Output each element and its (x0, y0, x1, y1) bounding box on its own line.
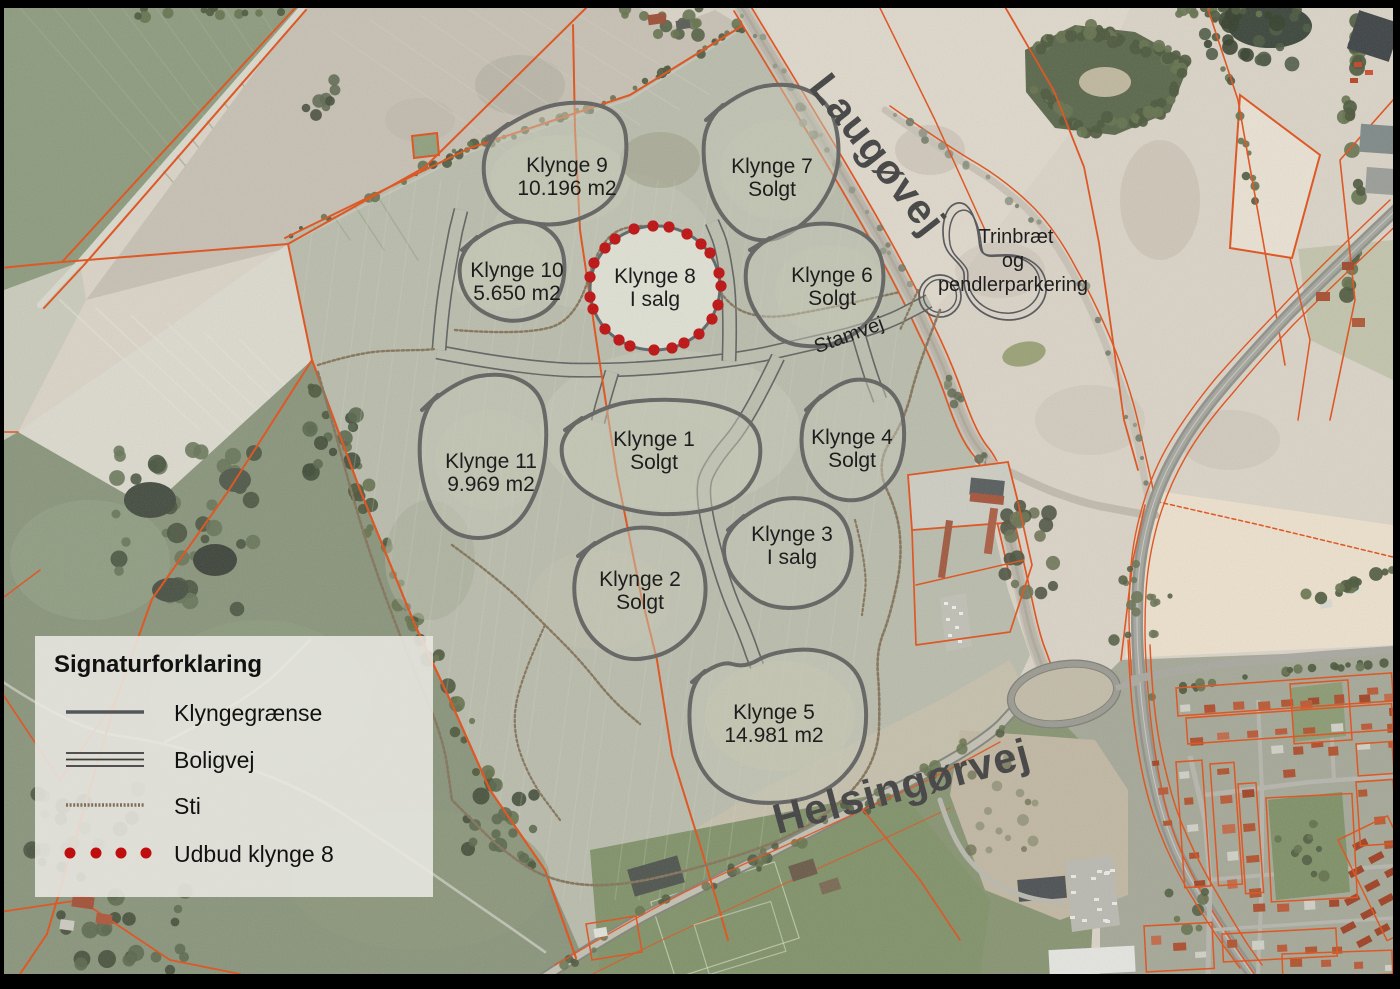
svg-text:Boligvej: Boligvej (174, 747, 255, 773)
svg-text:Udbud klynge 8: Udbud klynge 8 (174, 841, 334, 867)
svg-text:Signaturforklaring: Signaturforklaring (54, 651, 262, 678)
svg-text:Klyngegrænse: Klyngegrænse (174, 700, 322, 726)
svg-text:Sti: Sti (174, 793, 201, 819)
